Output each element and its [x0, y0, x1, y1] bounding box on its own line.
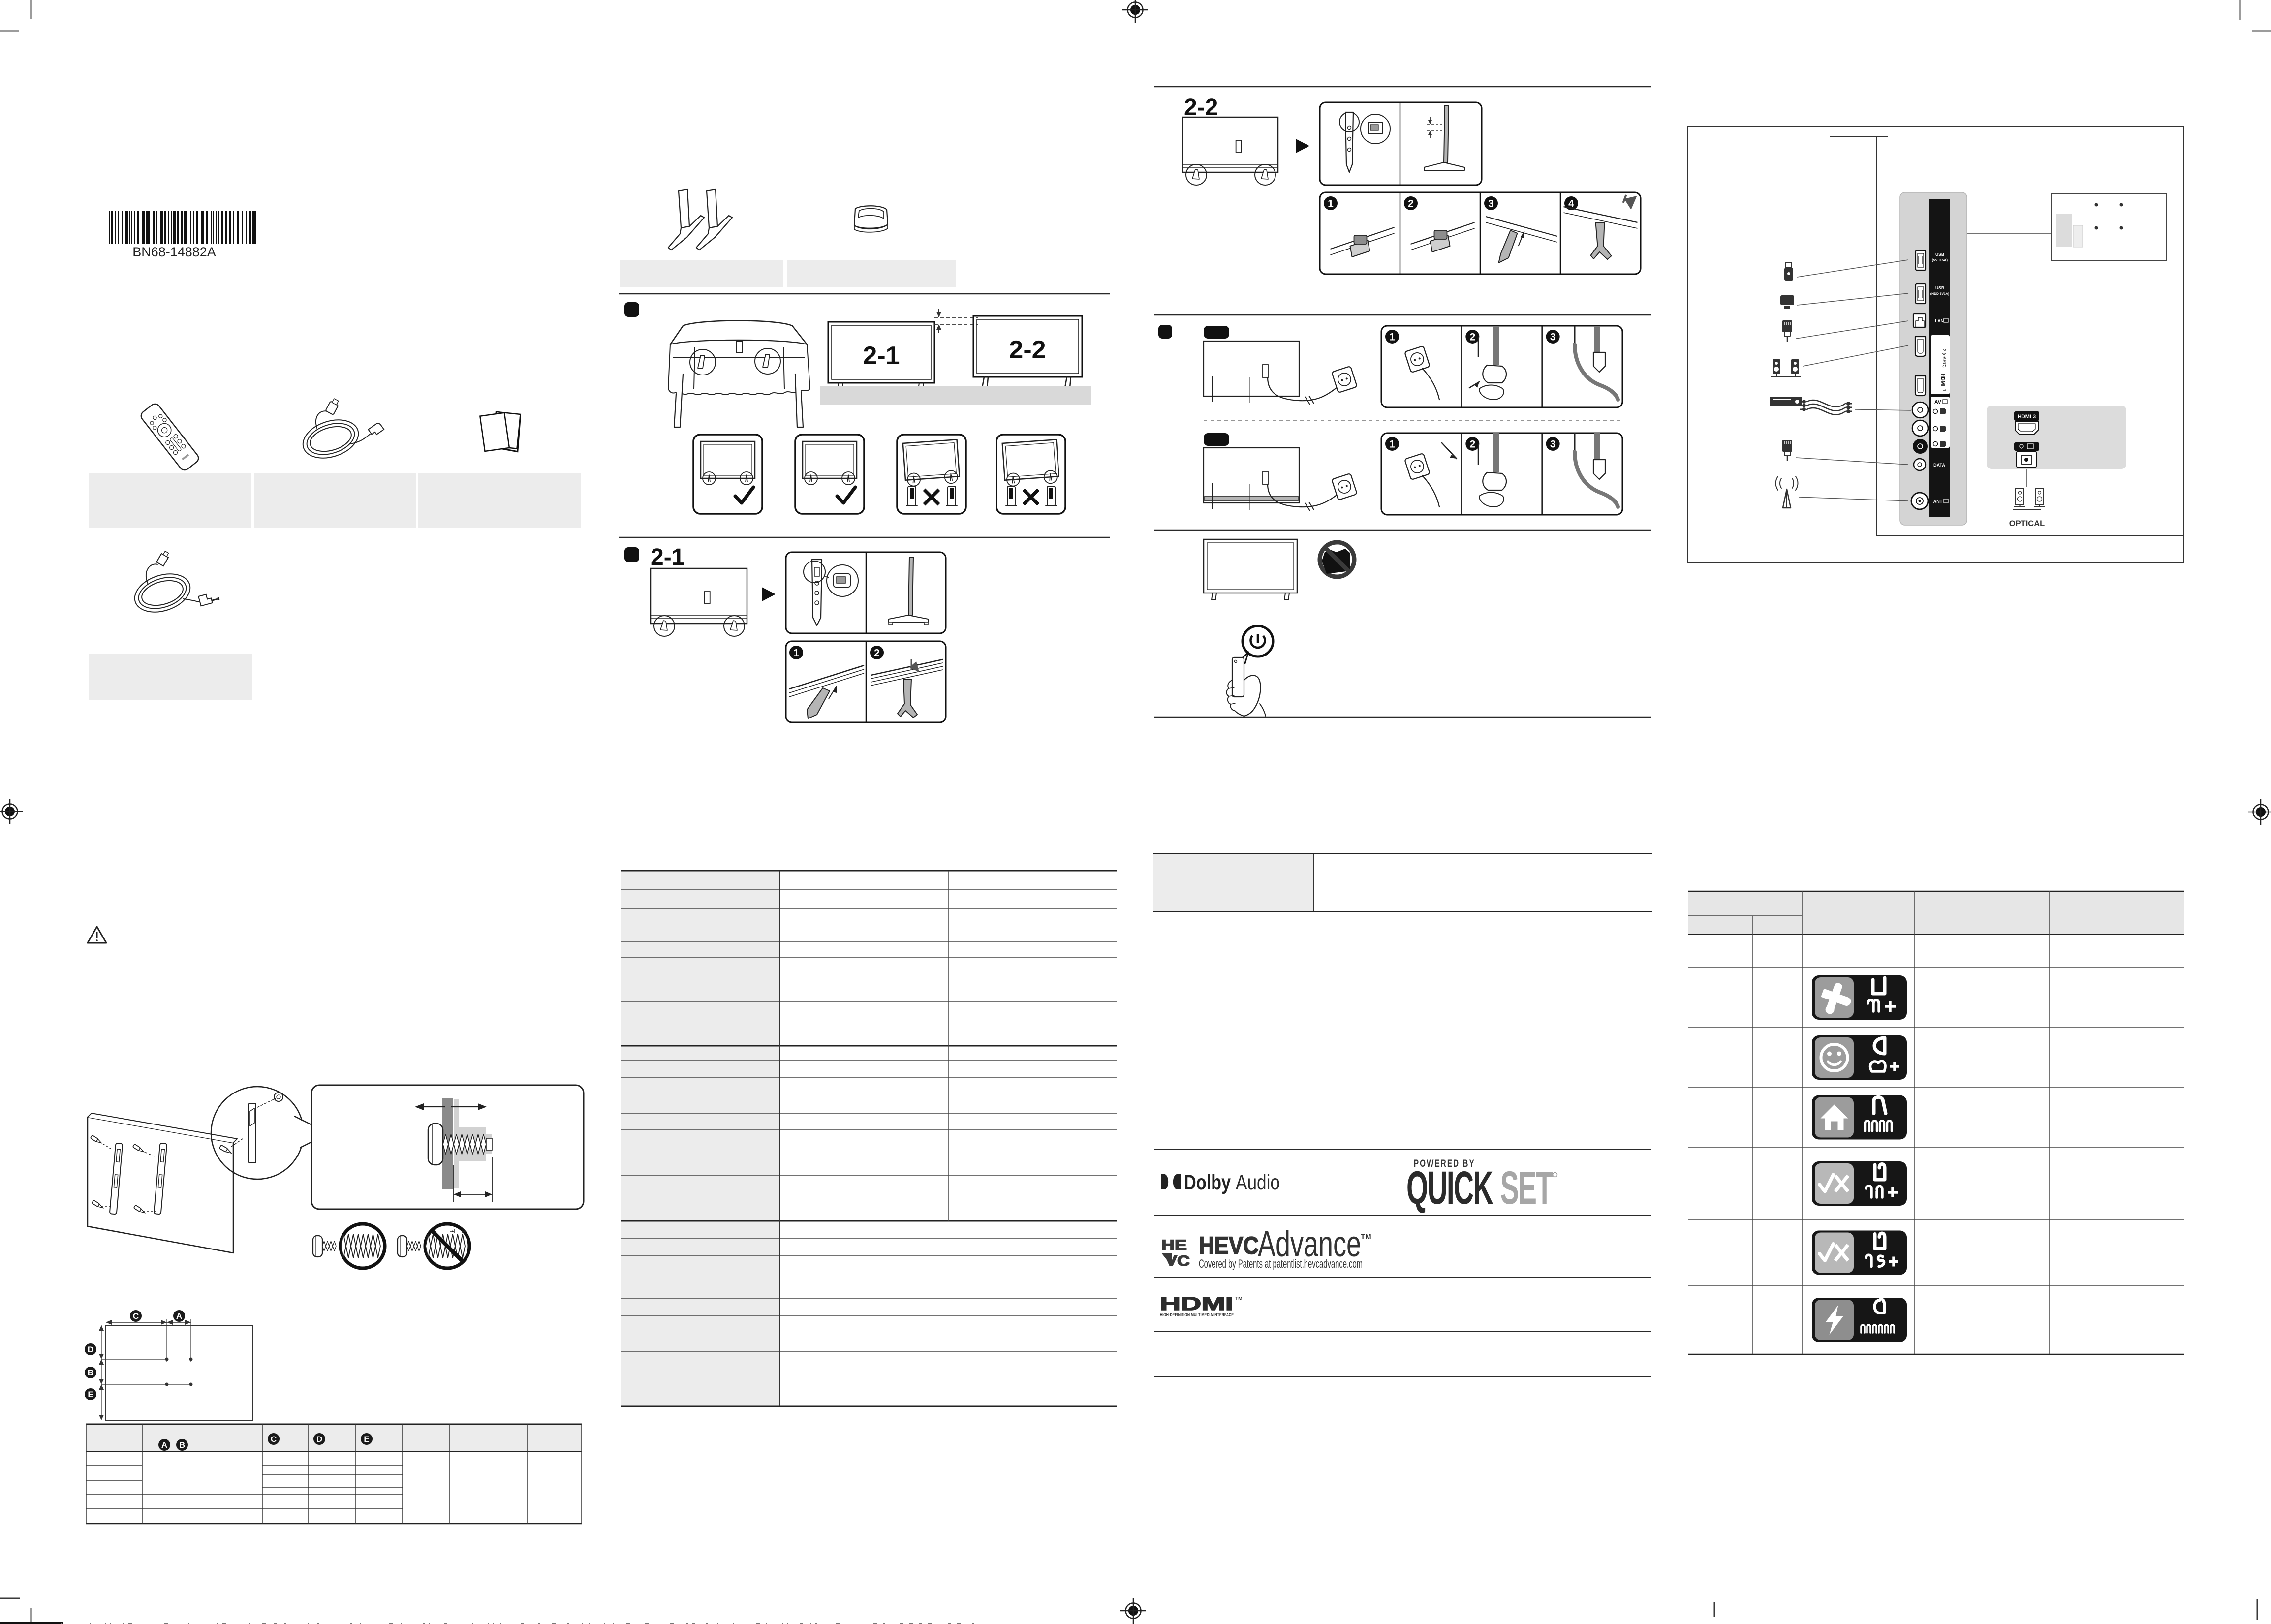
svg-text:A: A [161, 1440, 167, 1450]
svg-text:LAN: LAN [1935, 318, 1943, 323]
svg-text:2: 2 [874, 647, 880, 658]
svg-text:QUICK: QUICK [1406, 1161, 1493, 1214]
svg-text:1: 1 [1942, 389, 1947, 391]
svg-text:2: 2 [1408, 198, 1414, 209]
svg-text:2-1: 2-1 [651, 544, 684, 570]
svg-text:(HDD 5V1A): (HDD 5V1A) [1930, 292, 1949, 296]
svg-text:2: 2 [1469, 331, 1475, 343]
svg-text:(5V 0.5A): (5V 0.5A) [1932, 258, 1948, 262]
svg-text:A: A [176, 1312, 182, 1321]
svg-text:3: 3 [1488, 198, 1494, 209]
svg-text:HIGH-DEFINITION MULTIMEDIA INT: HIGH-DEFINITION MULTIMEDIA INTERFACE [1160, 1312, 1234, 1318]
svg-text:B: B [179, 1440, 185, 1450]
svg-text:OPTICAL: OPTICAL [2009, 519, 2045, 528]
svg-text:HDMI: HDMI [1160, 1294, 1233, 1314]
svg-text:HE: HE [1161, 1237, 1187, 1253]
svg-text:HDMI: HDMI [1940, 374, 1946, 387]
svg-text:3: 3 [1550, 438, 1556, 450]
svg-text:HDMI 3: HDMI 3 [2018, 414, 2036, 420]
svg-text:C: C [271, 1435, 277, 1444]
svg-text:2-2: 2-2 [1009, 336, 1046, 364]
svg-text:USB: USB [1935, 252, 1944, 257]
svg-text:Covered by Patents at patentli: Covered by Patents at patentlist.hevcadv… [1199, 1257, 1363, 1271]
svg-text:3: 3 [1550, 331, 1556, 343]
svg-text:2: 2 [1469, 438, 1475, 450]
svg-text:B: B [88, 1368, 93, 1377]
svg-text:SET: SET [1500, 1161, 1553, 1214]
svg-text:Dolby: Dolby [1184, 1171, 1231, 1194]
svg-text:BN68-14882A: BN68-14882A [132, 245, 216, 259]
svg-text:D: D [88, 1345, 93, 1354]
svg-text:Audio: Audio [1236, 1171, 1280, 1194]
svg-text:ANT: ANT [1933, 499, 1943, 504]
svg-text:TM: TM [1361, 1233, 1371, 1241]
svg-text:D: D [316, 1435, 322, 1444]
svg-text:E: E [364, 1435, 369, 1444]
svg-text:USB: USB [1935, 285, 1944, 290]
svg-text:2-1: 2-1 [863, 342, 900, 370]
svg-text:1: 1 [1328, 198, 1334, 209]
svg-text:E: E [88, 1390, 93, 1399]
svg-text:1: 1 [1389, 331, 1395, 343]
svg-text:DATA: DATA [1933, 463, 1945, 468]
svg-text:1: 1 [793, 647, 799, 658]
svg-text:TM: TM [1235, 1296, 1242, 1302]
svg-text:HEVC: HEVC [1199, 1232, 1259, 1259]
svg-text:C: C [133, 1312, 139, 1321]
svg-text:AV: AV [1934, 399, 1941, 405]
svg-text:1: 1 [1389, 438, 1395, 450]
svg-text:2 (eARC): 2 (eARC) [1942, 349, 1947, 368]
